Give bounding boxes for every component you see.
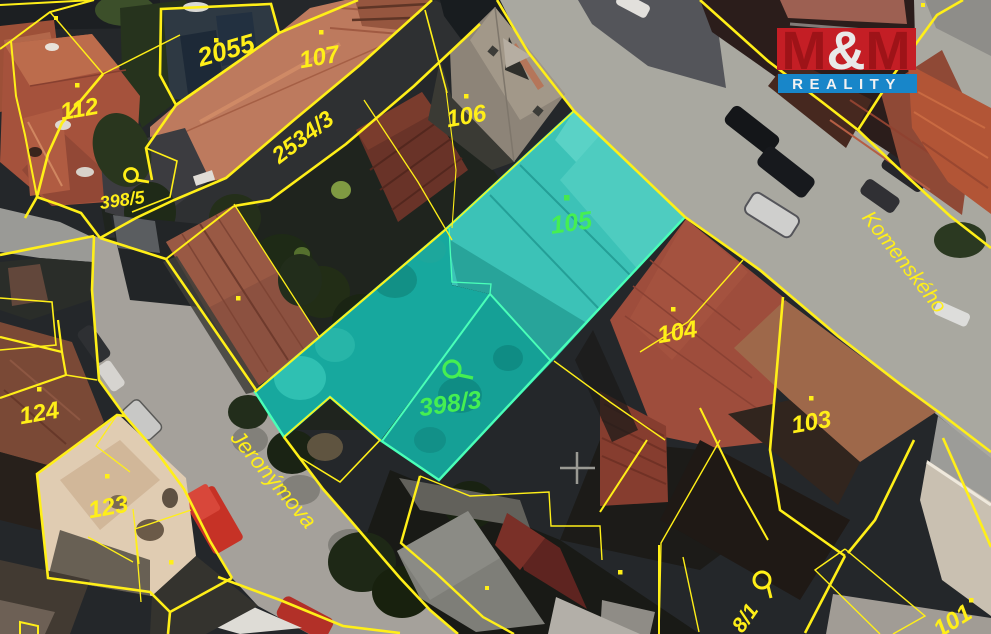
svg-text:105: 105 <box>549 206 595 240</box>
svg-text:REALITY: REALITY <box>792 76 902 93</box>
svg-text:M&M: M&M <box>782 21 911 81</box>
